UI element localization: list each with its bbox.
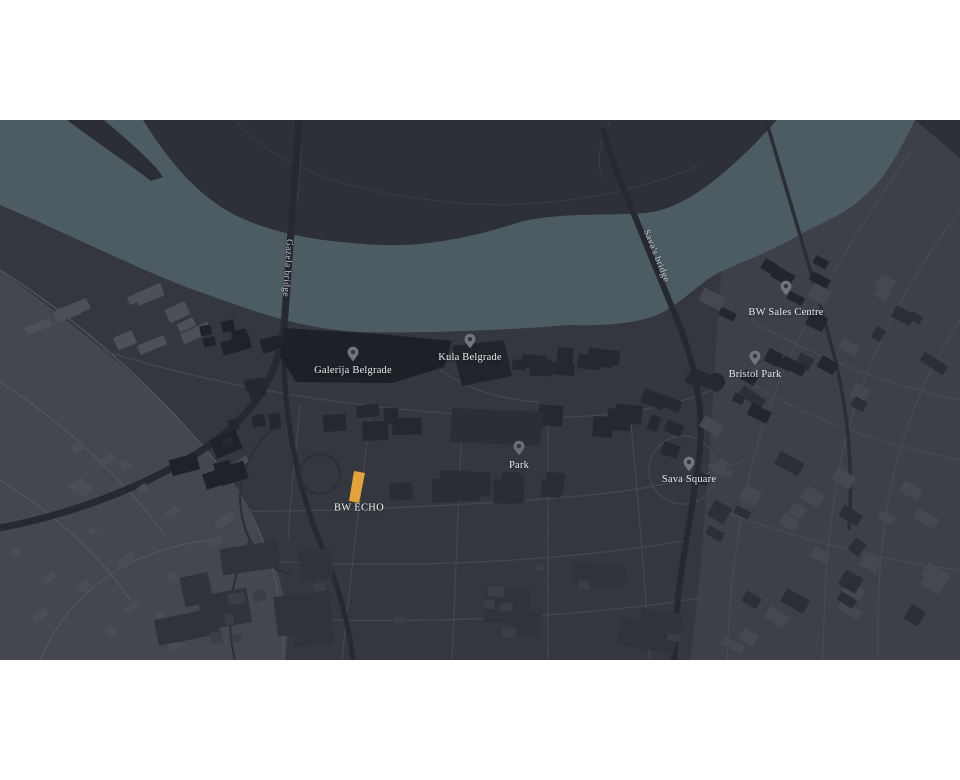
map-pin-icon (513, 440, 526, 456)
map-pin-icon (780, 280, 793, 296)
poi-label: BW Sales Centre (748, 307, 823, 318)
page: Gazela bridge Sava's bridge Galerija Bel… (0, 0, 960, 780)
poi-label: Galerija Belgrade (314, 365, 392, 376)
map-pin-icon (683, 456, 696, 472)
map-canvas[interactable]: Gazela bridge Sava's bridge Galerija Bel… (0, 120, 960, 660)
letterbox-bottom (0, 660, 960, 780)
map-pin-icon (347, 346, 360, 362)
park-block (450, 408, 544, 446)
poi-label: Sava Square (662, 474, 716, 485)
bw-echo-label: BW ECHO (334, 503, 384, 514)
poi-label: Park (509, 460, 529, 471)
poi-label: Kula Belgrade (438, 352, 502, 363)
poi-label: Bristol Park (729, 369, 782, 380)
map-pin-icon (749, 350, 762, 366)
letterbox-top (0, 0, 960, 120)
map-pin-icon (464, 333, 477, 349)
map-base-art (0, 120, 960, 660)
